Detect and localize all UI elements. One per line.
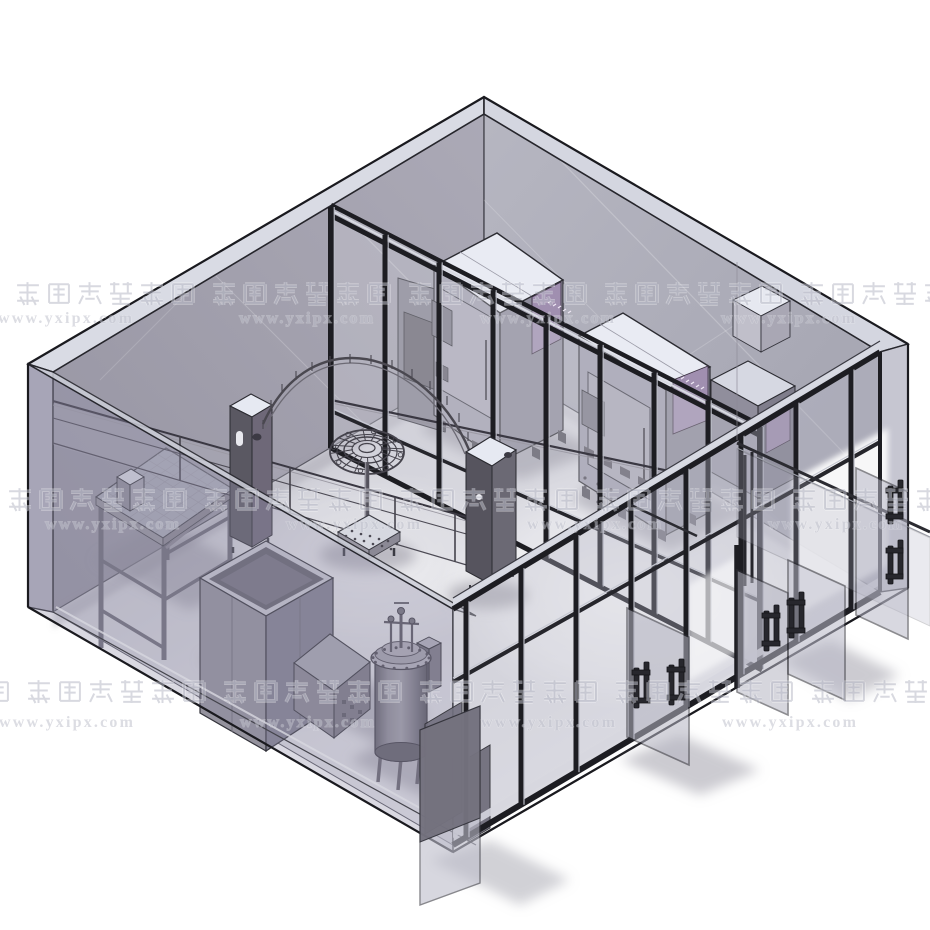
svg-text:www.yxipx.com: www.yxipx.com [768,516,904,533]
svg-text:www.yxipx.com: www.yxipx.com [45,516,181,533]
svg-text:www.yxipx.com: www.yxipx.com [239,310,375,327]
svg-text:www.yxipx.com: www.yxipx.com [286,516,422,533]
svg-text:www.yxipx.com: www.yxipx.com [527,516,663,533]
svg-text:www.yxipx.com: www.yxipx.com [722,714,858,731]
svg-text:www.yxipx.com: www.yxipx.com [481,714,617,731]
svg-text:www.yxipx.com: www.yxipx.com [240,714,376,731]
svg-text:www.yxipx.com: www.yxipx.com [480,310,616,327]
svg-text:www.yxipx.com: www.yxipx.com [0,310,134,327]
svg-text:www.yxipx.com: www.yxipx.com [721,310,857,327]
svg-text:www.yxipx.com: www.yxipx.com [0,714,135,731]
